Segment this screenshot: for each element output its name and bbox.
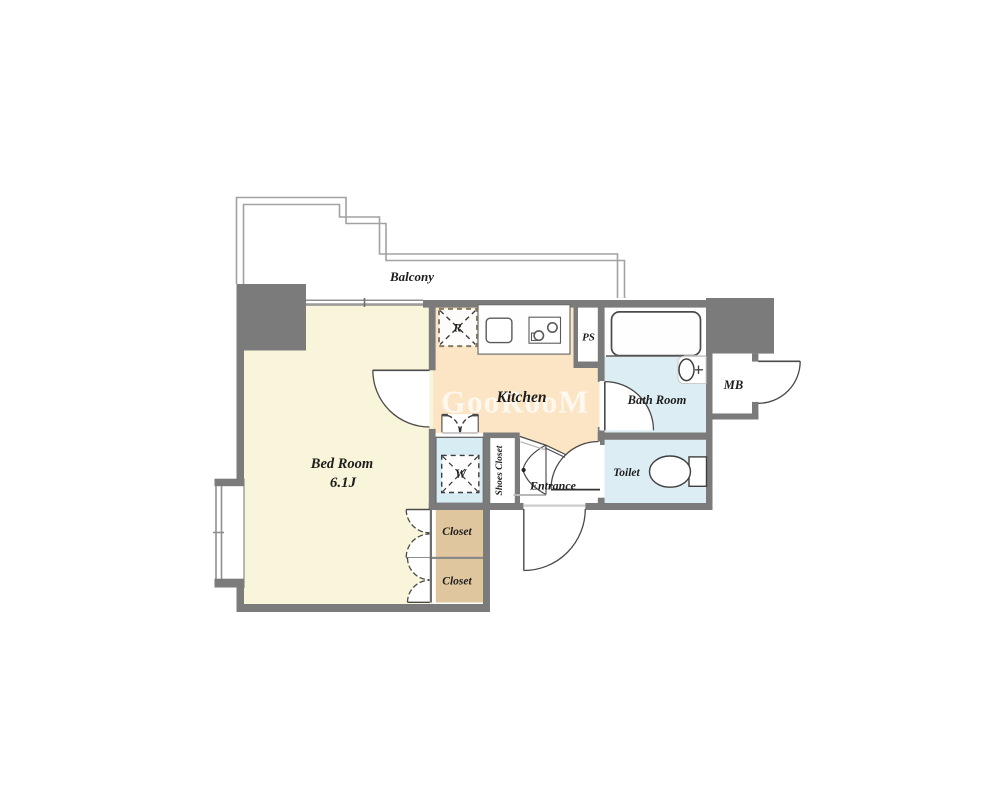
svg-text:MB: MB xyxy=(723,378,743,392)
svg-text:Balcony: Balcony xyxy=(389,269,434,284)
svg-text:PS: PS xyxy=(582,332,595,344)
svg-text:Shoes Closet: Shoes Closet xyxy=(495,445,505,495)
svg-text:6.1J: 6.1J xyxy=(330,475,357,491)
svg-text:Kitchen: Kitchen xyxy=(496,389,547,406)
svg-text:W: W xyxy=(455,467,467,481)
svg-text:Toilet: Toilet xyxy=(613,467,640,479)
svg-text:Entrance: Entrance xyxy=(529,479,577,493)
svg-text:R: R xyxy=(452,321,461,335)
svg-text:Closet: Closet xyxy=(442,526,472,538)
svg-text:Bath Room: Bath Room xyxy=(627,393,687,407)
svg-text:Closet: Closet xyxy=(442,576,472,588)
svg-text:Bed Room: Bed Room xyxy=(310,456,373,472)
